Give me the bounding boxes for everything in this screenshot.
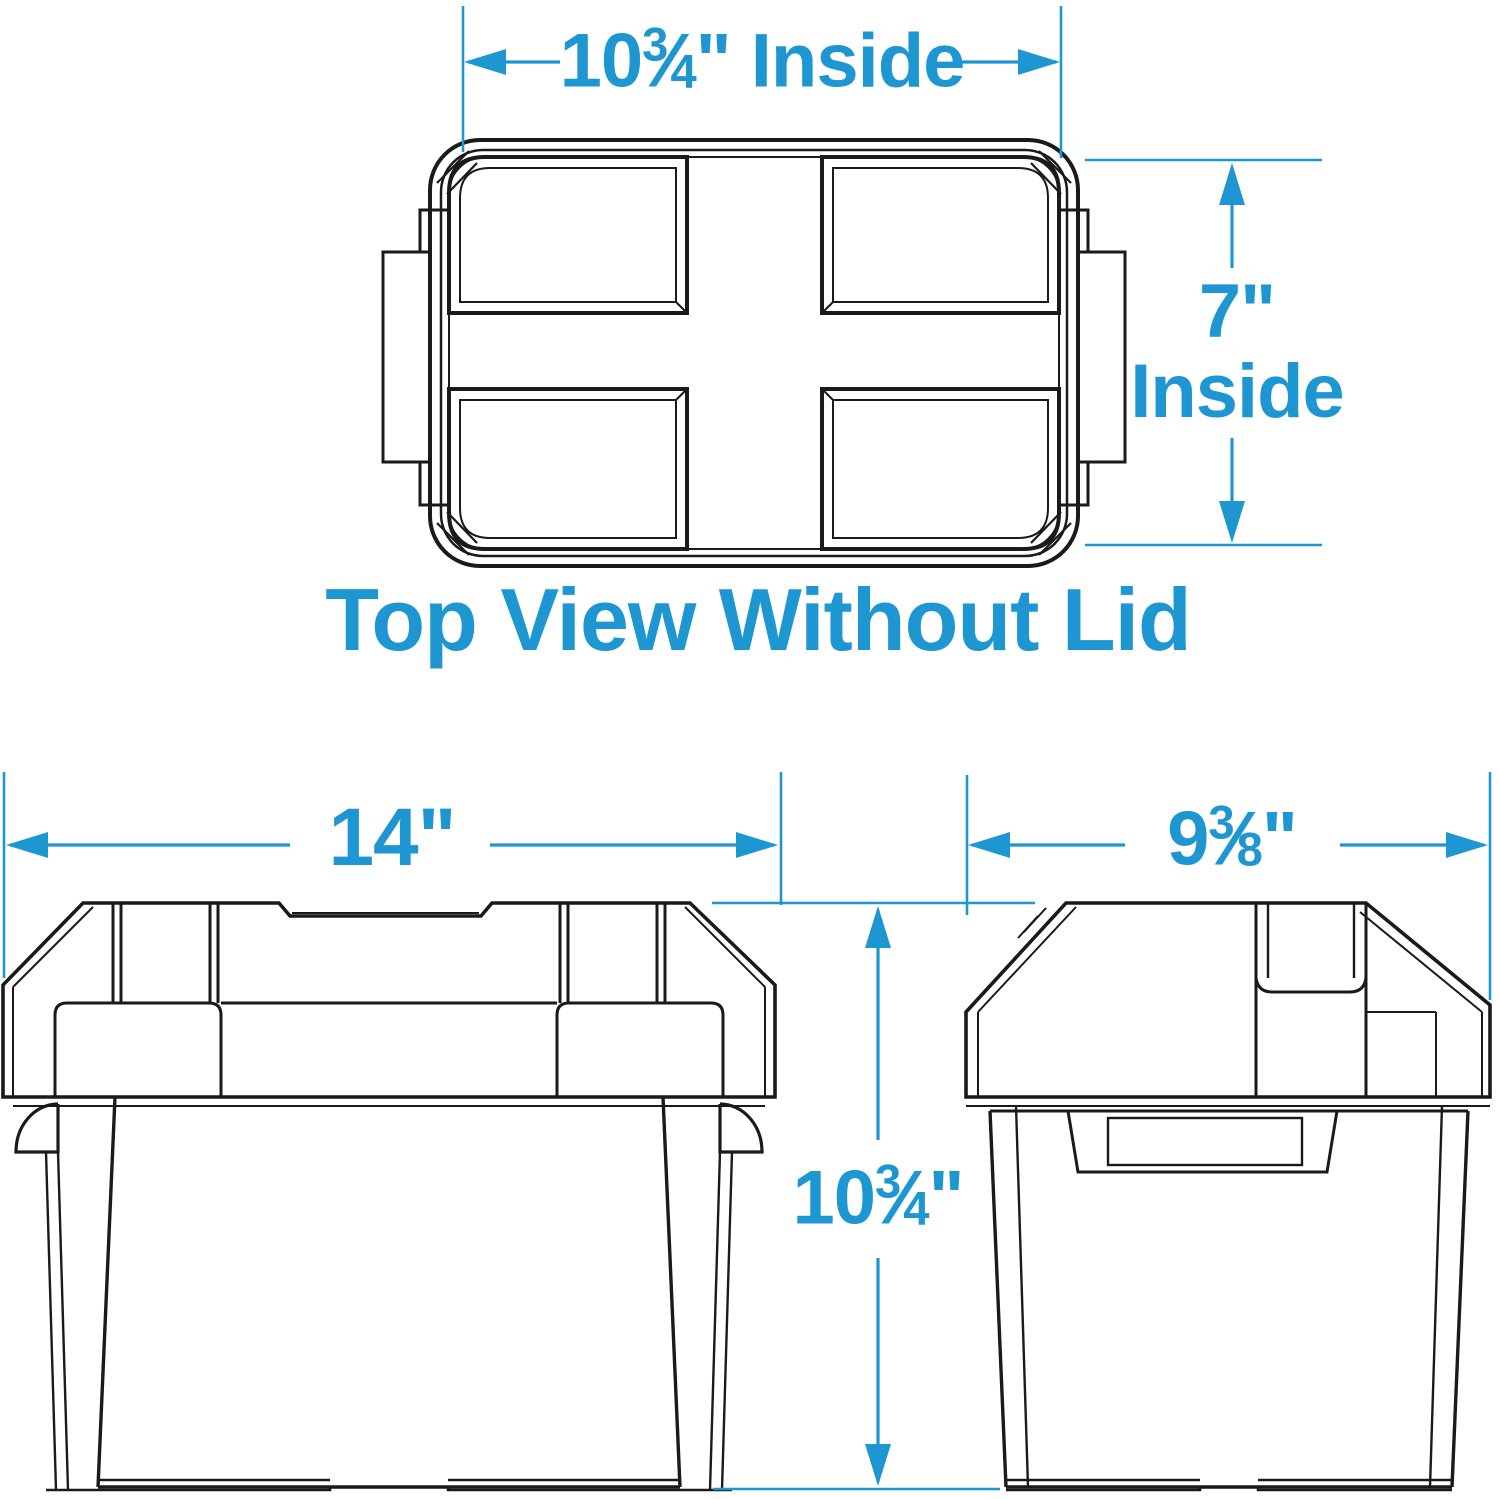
front-width-label: 14" [328, 797, 455, 879]
divider-panels [449, 157, 1059, 549]
side-lid-strap-channel [1256, 903, 1366, 1097]
side-view-drawing [966, 903, 1490, 1490]
divider-panel-inner-lines [460, 168, 1048, 538]
dimension-lines [4, 6, 1490, 1489]
lid-inner-edges [13, 907, 765, 1106]
top-inside-width-label: 103⁄4" Inside [560, 21, 965, 100]
inside-depth-word-label: Inside [1130, 354, 1344, 430]
inside-depth-value-label: 7" [1199, 274, 1275, 350]
handle-tabs [383, 210, 1125, 505]
top-view-caption: Top View Without Lid [325, 576, 1191, 664]
side-lid-inner-edges [966, 907, 1490, 1106]
front-view-drawing [3, 903, 775, 1490]
extension-lines [4, 6, 1490, 1489]
diagram-linework [0, 0, 1499, 1499]
strap-hooks [16, 1104, 762, 1152]
side-depth-label: 93⁄8" [1167, 799, 1297, 878]
front-body [98, 1097, 680, 1487]
corner-chamfer-ticks [437, 151, 1071, 555]
arrowhead-icons [6, 49, 1488, 1486]
side-body [990, 1106, 1468, 1490]
overall-height-label: 103⁄4" [792, 1158, 963, 1237]
front-straps [46, 1152, 732, 1490]
lid-strap-bands [55, 903, 723, 1097]
battery-box-dimension-diagram: 103⁄4" Inside 7" Inside Top View Without… [0, 0, 1499, 1499]
top-view-drawing [383, 140, 1125, 566]
